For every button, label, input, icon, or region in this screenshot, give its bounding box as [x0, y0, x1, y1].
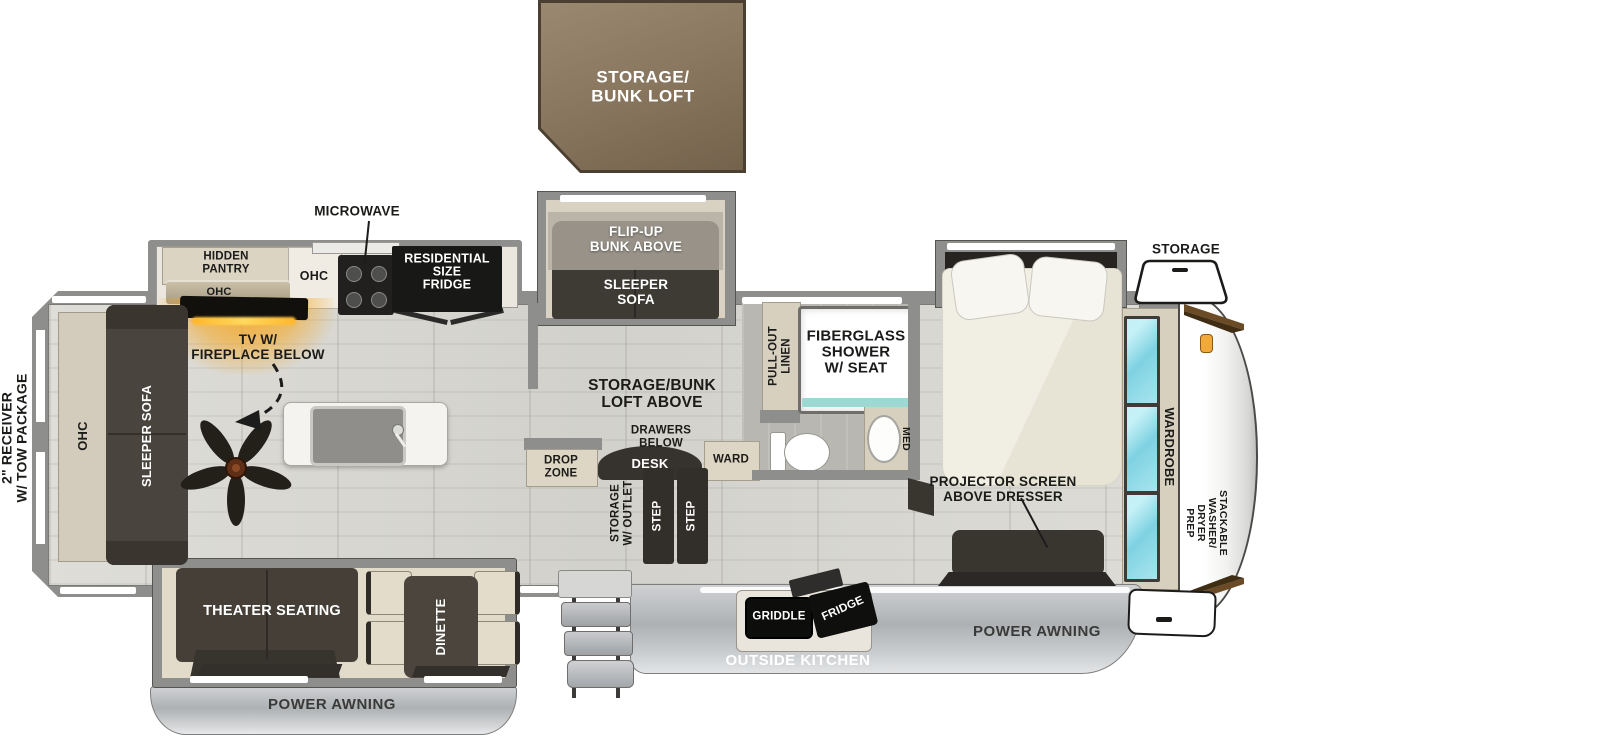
hidden-pantry-label: HIDDEN PANTRY — [202, 250, 249, 275]
storage-hatch-icon — [1130, 258, 1232, 306]
vanity-sink — [867, 415, 901, 463]
bath-bedroom-wall — [908, 300, 920, 480]
rear-window-strip — [36, 330, 45, 422]
residential-fridge-label: RESIDENTIAL SIZE FRIDGE — [404, 252, 490, 291]
rear-window-strip — [36, 452, 45, 544]
fireplace-flame-strip — [192, 317, 296, 325]
front-cap — [1178, 296, 1258, 618]
power-awning-left-label: POWER AWNING — [268, 697, 396, 714]
outside-kitchen-label: OUTSIDE KITCHEN — [725, 653, 870, 670]
slide-window-strip — [190, 676, 308, 683]
entry-step — [567, 660, 634, 688]
projector-screen-label: PROJECTOR SCREEN ABOVE DRESSER — [930, 475, 1077, 505]
bed-pillow — [949, 252, 1031, 322]
step-label-a: STEP — [652, 501, 665, 532]
stove-burner — [371, 292, 387, 308]
rear-sleeper-sofa-label: SLEEPER SOFA — [140, 385, 154, 487]
floorplan-canvas: STORAGE/ BUNK LOFT 2" RECEIVER W/ TOW PA… — [0, 0, 1600, 738]
shower-glass — [802, 398, 909, 407]
wardrobe-label: WARDROBE — [1162, 408, 1176, 487]
entry-step — [564, 631, 633, 656]
dinette-chair — [474, 571, 520, 615]
storage-hatch-label: STORAGE — [1152, 243, 1220, 258]
dresser — [952, 530, 1104, 576]
pantry-ohc-label: OHC — [206, 286, 231, 298]
dinette-chair — [474, 621, 520, 665]
slide-window-strip — [424, 676, 502, 683]
kitchen-end-wall — [528, 303, 538, 389]
dinette-label: DINETTE — [434, 598, 448, 655]
projector-screen-floor — [938, 572, 1116, 586]
step-label-b: STEP — [686, 501, 699, 532]
storage-outlet-label: STORAGE W/ OUTLET — [609, 480, 634, 545]
linen-base — [760, 410, 800, 423]
theater-seating-label: THEATER SEATING — [203, 604, 341, 620]
tv-pointer-dashed-arrow — [205, 356, 300, 444]
microwave-shelf — [312, 242, 400, 254]
griddle-label: GRIDDLE — [752, 611, 805, 624]
compartment-door-handle — [1156, 617, 1172, 622]
tv-fireplace-label: TV W/ FIREPLACE BELOW — [191, 333, 325, 363]
loft-above-label: STORAGE/BUNK LOFT ABOVE — [588, 377, 716, 411]
microwave-label: MICROWAVE — [314, 205, 400, 220]
stove-burner — [371, 266, 387, 282]
entry-step — [558, 570, 632, 598]
island-sink — [310, 406, 406, 466]
shower-label: FIBERGLASS SHOWER W/ SEAT — [807, 328, 906, 375]
cap-chevron-top — [1184, 300, 1248, 336]
wall-window-strip — [60, 587, 136, 594]
kitchen-ohc-label: OHC — [300, 270, 328, 284]
rear-ohc-label: OHC — [76, 421, 90, 451]
sofa-armrest — [106, 305, 188, 329]
wardrobe-mirror — [1124, 316, 1160, 406]
power-awning-right-label: POWER AWNING — [973, 624, 1101, 641]
bed-slide-window — [947, 243, 1115, 250]
wardrobe-mirror — [1124, 492, 1160, 582]
stove-burner — [346, 266, 362, 282]
wall-window-strip — [52, 296, 146, 303]
med-cabinet-label: MED — [899, 427, 911, 451]
wall-window-strip — [520, 586, 558, 593]
drop-zone-label: DROP ZONE — [544, 454, 578, 479]
toilet-bowl — [784, 433, 830, 472]
bath-bottom-wall — [752, 470, 914, 480]
range-stove — [338, 255, 394, 315]
bunk-loft-label: STORAGE/ BUNK LOFT — [591, 68, 695, 105]
sofa-slide-window — [560, 195, 706, 202]
slide-sleeper-sofa-label: SLEEPER SOFA — [604, 278, 668, 308]
wardrobe-mirror — [1124, 404, 1160, 494]
sofa-armrest — [106, 541, 188, 565]
desk-label: DESK — [632, 457, 669, 471]
stove-burner — [346, 292, 362, 308]
receiver-label: 2" RECEIVER W/ TOW PACKAGE — [0, 373, 30, 502]
flip-up-bunk-label: FLIP-UP BUNK ABOVE — [590, 225, 682, 255]
entry-step — [561, 602, 631, 627]
cap-handle — [1200, 334, 1213, 353]
pull-out-linen-label: PULL-OUT LINEN — [767, 326, 792, 386]
front-compartment-door — [1127, 588, 1217, 637]
washer-prep-label: STACKABLE WASHER/ DRYER PREP — [1184, 490, 1228, 556]
ward-label: WARD — [713, 454, 749, 467]
drawers-below-label: DRAWERS BELOW — [631, 424, 691, 449]
bed-pillow — [1027, 255, 1109, 323]
